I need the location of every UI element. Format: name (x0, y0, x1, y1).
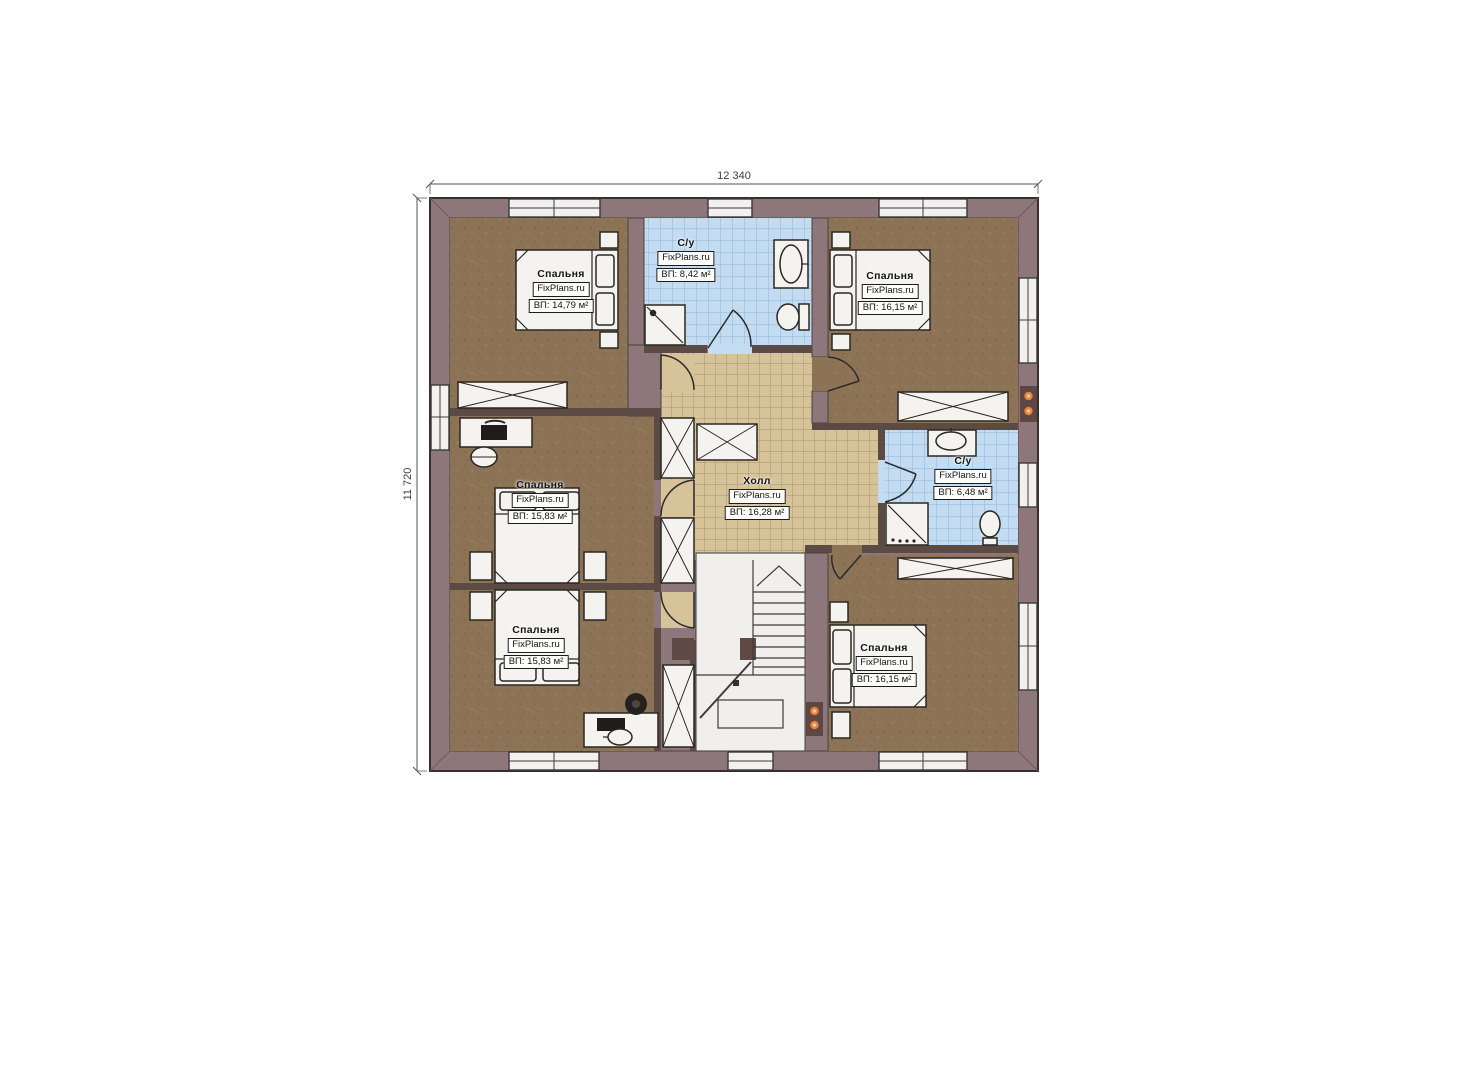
wall-bath-trbed-upper (812, 218, 828, 357)
window-top-1 (509, 199, 600, 217)
wall-bath-top-bottom-left (644, 345, 707, 353)
br-nightstand-top (830, 602, 848, 622)
room-brand: FixPlans.ru (861, 284, 919, 299)
wall-hall-topleft (628, 345, 661, 416)
bl-nightstand-left (470, 592, 492, 620)
wall-left-spine-2 (654, 516, 661, 592)
room-name: Спальня (516, 480, 563, 491)
window-right-1 (1019, 278, 1037, 363)
room-brand: FixPlans.ru (934, 469, 992, 484)
room-area: ВП: 14,79 м² (529, 299, 594, 314)
label-bedroom-bottom-right: Спальня FixPlans.ru ВП: 16,15 м² (852, 643, 917, 687)
label-bedroom-top-right: Спальня FixPlans.ru ВП: 16,15 м² (858, 271, 923, 315)
wall-bathright-left-upper (878, 428, 885, 460)
room-area: ВП: 8,42 м² (656, 268, 715, 283)
wall-corridor-brbed-left (805, 545, 832, 553)
tr-nightstand-top (832, 232, 850, 248)
tr-nightstand-bottom (832, 334, 850, 350)
window-top-3 (879, 199, 967, 217)
wall-corridor-brbed-right (862, 545, 1018, 553)
label-bedroom-bottom-left: Спальня FixPlans.ru ВП: 15,83 м² (504, 625, 569, 669)
door-bedroom-top-left (661, 355, 694, 391)
wall-bathright-left-lower (878, 503, 885, 545)
newel-post-left (672, 638, 694, 660)
window-right-3 (1019, 603, 1037, 690)
tr-wardrobe (898, 392, 1008, 421)
wall-tlbed-bath (628, 218, 644, 348)
room-area: ВП: 16,28 м² (725, 506, 790, 521)
room-area: ВП: 16,15 м² (858, 301, 923, 316)
tl-wardrobe (458, 382, 567, 408)
floor-plan-canvas (0, 0, 1473, 1080)
br-wardrobe (898, 558, 1013, 579)
wall-bath-top-bottom-right (752, 345, 812, 353)
room-name: Спальня (866, 271, 913, 282)
door-bedroom-middle-left (661, 480, 694, 516)
room-name: Спальня (537, 269, 584, 280)
shower-top (645, 305, 685, 345)
toilet-top (777, 304, 809, 330)
br-nightstand-bottom (832, 712, 850, 738)
wall-tl-ml (450, 408, 661, 416)
hall-closet-2 (661, 518, 694, 583)
label-bathroom-top: С/у FixPlans.ru ВП: 8,42 м² (656, 238, 715, 282)
wall-trbed-corridor (812, 423, 1018, 430)
room-area: ВП: 16,15 м² (852, 673, 917, 688)
wall-left-spine-1 (654, 416, 661, 480)
tl-nightstand-top (600, 232, 618, 248)
wall-ml-bl (450, 583, 661, 590)
room-brand: FixPlans.ru (532, 282, 590, 297)
label-bathroom-right: С/у FixPlans.ru ВП: 6,48 м² (933, 456, 992, 500)
hall-closet-3 (663, 665, 694, 747)
label-hall: Холл FixPlans.ru ВП: 16,28 м² (725, 476, 790, 520)
room-name: Спальня (512, 625, 559, 636)
sink-top (774, 240, 808, 288)
dimension-width: 12 340 (717, 170, 751, 182)
room-brand: FixPlans.ru (855, 656, 913, 671)
room-area: ВП: 15,83 м² (508, 510, 573, 525)
dimension-height: 11 720 (402, 468, 414, 501)
room-name: С/у (954, 456, 971, 467)
hall-cabinet (697, 424, 757, 460)
room-name: С/у (677, 238, 694, 249)
ml-nightstand-left (470, 552, 492, 580)
wall-bath-trbed-lower (812, 391, 828, 423)
window-left-1 (431, 385, 449, 450)
ml-nightstand-right (584, 552, 606, 580)
room-area: ВП: 6,48 м² (933, 486, 992, 501)
window-top-2 (708, 199, 752, 217)
window-bottom-3 (879, 752, 967, 770)
room-name: Спальня (860, 643, 907, 654)
door-bedroom-bottom-left (661, 592, 694, 628)
toilet-right (980, 511, 1000, 545)
heater-right-wall (1020, 386, 1037, 422)
heater-stairs-wall (806, 702, 823, 736)
window-right-2 (1019, 463, 1037, 507)
shower-right (886, 503, 928, 545)
room-brand: FixPlans.ru (511, 493, 569, 508)
bl-nightstand-right (584, 592, 606, 620)
window-bottom-2 (728, 752, 773, 770)
room-brand: FixPlans.ru (657, 251, 715, 266)
hall-closet-1 (661, 418, 694, 478)
room-brand: FixPlans.ru (507, 638, 565, 653)
floor-plan-page: 12 340 11 720 Спальня FixPlans.ru ВП: 14… (0, 0, 1473, 1080)
room-brand: FixPlans.ru (728, 489, 786, 504)
label-bedroom-top-left: Спальня FixPlans.ru ВП: 14,79 м² (529, 269, 594, 313)
room-area: ВП: 15,83 м² (504, 655, 569, 670)
tl-nightstand-bottom (600, 332, 618, 348)
sink-right (928, 428, 976, 456)
corridor-floor (812, 430, 878, 545)
label-bedroom-middle-left: Спальня FixPlans.ru ВП: 15,83 м² (508, 480, 573, 524)
window-bottom-1 (509, 752, 599, 770)
room-name: Холл (743, 476, 771, 487)
stairs-railing-node (733, 680, 739, 686)
